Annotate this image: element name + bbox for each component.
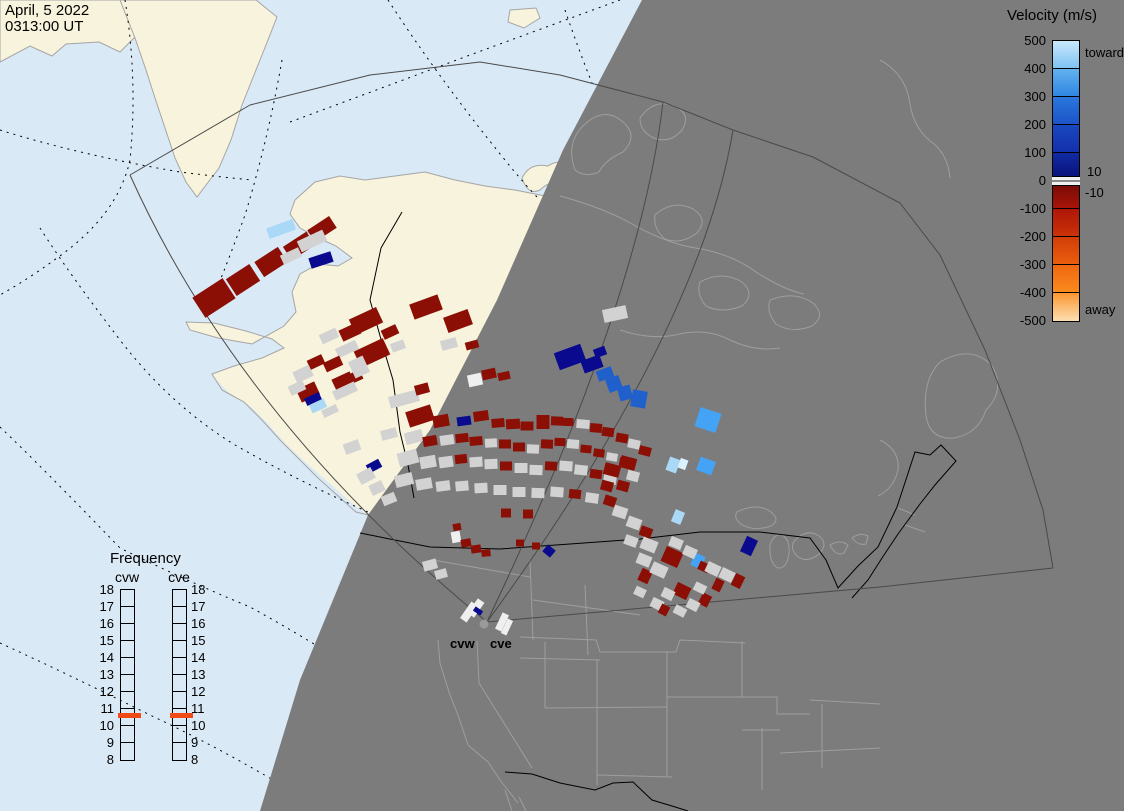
frequency-tick: 17 [88, 599, 114, 613]
frequency-bar-cell [121, 624, 134, 641]
frequency-bar-cell [121, 607, 134, 624]
frequency-marker-cve [170, 713, 193, 718]
frequency-bar-cell [121, 726, 134, 743]
data-cell [452, 523, 461, 531]
data-cell [500, 462, 512, 471]
frequency-bar-cell [173, 590, 186, 607]
frequency-bar-cell [173, 675, 186, 692]
frequency-tick: 12 [191, 684, 217, 698]
velocity-tick: 0 [1002, 173, 1046, 187]
data-cell [460, 538, 471, 548]
zero-upper-label: 10 [1087, 165, 1101, 179]
data-cell [580, 444, 592, 453]
data-cell [485, 438, 497, 448]
frequency-tick: 9 [191, 735, 217, 749]
frequency-tick: 15 [191, 633, 217, 647]
frequency-bar-cell [121, 692, 134, 709]
frequency-tick: 9 [88, 735, 114, 749]
velocity-segment [1053, 265, 1079, 293]
data-cell [501, 509, 511, 518]
frequency-tick: 14 [88, 650, 114, 664]
velocity-segment [1053, 125, 1079, 153]
frequency-tick: 18 [191, 582, 217, 596]
data-cell [494, 485, 507, 495]
zero-lower-label: -10 [1085, 186, 1104, 200]
data-cell [551, 416, 563, 425]
data-cell [562, 418, 573, 426]
frequency-tick: 8 [88, 752, 114, 766]
map-label-cvw: cvw [450, 636, 475, 651]
data-cell [469, 436, 483, 446]
frequency-tick: 13 [88, 667, 114, 681]
data-cell [589, 469, 602, 480]
velocity-tick: -400 [1002, 285, 1046, 299]
frequency-bar-cvw [120, 589, 135, 761]
data-cell [484, 459, 497, 469]
data-cell [523, 510, 533, 519]
data-cell [541, 439, 553, 448]
frequency-bar-cell [121, 590, 134, 607]
frequency-bar-cell [173, 607, 186, 624]
frequency-bar-cell [121, 675, 134, 692]
frequency-tick: 16 [88, 616, 114, 630]
frequency-bar-cve [172, 589, 187, 761]
velocity-legend-title: Velocity (m/s) [1007, 8, 1097, 24]
date-text: April, 5 2022 [5, 3, 89, 19]
data-cell [545, 461, 557, 471]
away-label: away [1085, 303, 1115, 317]
frequency-marker-cvw [118, 713, 141, 718]
frequency-tick: 11 [191, 701, 217, 715]
frequency-bar-cell [173, 743, 186, 760]
data-cell [439, 434, 454, 446]
velocity-tick: 300 [1002, 89, 1046, 103]
velocity-segment [1053, 293, 1079, 321]
frequency-bar-cell [173, 624, 186, 641]
frequency-tick: 12 [88, 684, 114, 698]
frequency-tick: 11 [88, 701, 114, 715]
timestamp: April, 5 2022 0313:00 UT [5, 3, 89, 35]
superdarn-velocity-map: April, 5 2022 0313:00 UT Velocity (m/s) … [0, 0, 1124, 811]
data-cell [593, 448, 605, 457]
data-cell [470, 544, 481, 553]
data-cell [630, 389, 648, 408]
velocity-tick: -300 [1002, 257, 1046, 271]
data-cell [521, 422, 534, 431]
data-cell [451, 531, 462, 543]
frequency-tick: 14 [191, 650, 217, 664]
velocity-segment [1053, 69, 1079, 97]
data-cell [590, 423, 603, 433]
velocity-segment [1053, 209, 1079, 237]
map-label-cve: cve [490, 636, 512, 651]
velocity-tick: -200 [1002, 229, 1046, 243]
data-cell [481, 549, 491, 557]
velocity-segment [1053, 237, 1079, 265]
velocity-tick: -100 [1002, 201, 1046, 215]
data-cell [585, 492, 599, 504]
frequency-tick: 16 [191, 616, 217, 630]
data-cell [455, 433, 469, 443]
frequency-bar-cell [173, 658, 186, 675]
frequency-bar-cell [121, 743, 134, 760]
map-canvas [0, 0, 1124, 811]
velocity-tick: 400 [1002, 61, 1046, 75]
data-cell [537, 415, 550, 429]
velocity-segment [1053, 97, 1079, 125]
frequency-tick: 18 [88, 582, 114, 596]
velocity-tick: 100 [1002, 145, 1046, 159]
frequency-legend-title: Frequency [110, 551, 181, 567]
frequency-tick: 8 [191, 752, 217, 766]
data-cell [576, 419, 590, 429]
data-cell [516, 540, 524, 547]
frequency-bar-cell [173, 692, 186, 709]
data-cell [601, 427, 614, 438]
frequency-bar-cell [121, 658, 134, 675]
data-cell [529, 465, 542, 475]
data-cell [515, 463, 528, 473]
velocity-tick: 500 [1002, 33, 1046, 47]
frequency-tick: 17 [191, 599, 217, 613]
toward-label: toward [1085, 46, 1124, 60]
frequency-tick: 10 [88, 718, 114, 732]
data-cell [474, 483, 488, 494]
frequency-tick: 13 [191, 667, 217, 681]
frequency-tick: 15 [88, 633, 114, 647]
frequency-bar-cell [173, 726, 186, 743]
frequency-bar-cell [173, 641, 186, 658]
time-text: 0313:00 UT [5, 19, 89, 35]
velocity-zero-line [1052, 180, 1080, 182]
data-cell [513, 487, 526, 497]
data-cell [554, 438, 565, 447]
data-cell [569, 489, 582, 499]
radar-site-dot [480, 620, 489, 629]
velocity-zero-band [1052, 176, 1080, 186]
data-cell [455, 480, 469, 491]
data-cell [491, 418, 505, 428]
data-cell [532, 543, 540, 550]
velocity-tick: 200 [1002, 117, 1046, 131]
data-cell [506, 419, 521, 430]
data-cell [531, 488, 544, 498]
data-cell [455, 454, 468, 464]
frequency-bar-cell [121, 641, 134, 658]
data-cell [499, 440, 511, 449]
frequency-tick: 10 [191, 718, 217, 732]
data-cell [435, 480, 450, 492]
data-cell [527, 444, 539, 453]
data-cell [469, 457, 483, 468]
velocity-tick: -500 [1002, 313, 1046, 327]
data-cell [559, 461, 573, 472]
data-cell [574, 464, 588, 475]
data-cell [473, 410, 489, 422]
velocity-segment [1053, 41, 1079, 69]
data-cell [438, 456, 453, 469]
data-cell [513, 443, 525, 452]
data-cell [567, 439, 580, 449]
data-cell [550, 487, 564, 498]
